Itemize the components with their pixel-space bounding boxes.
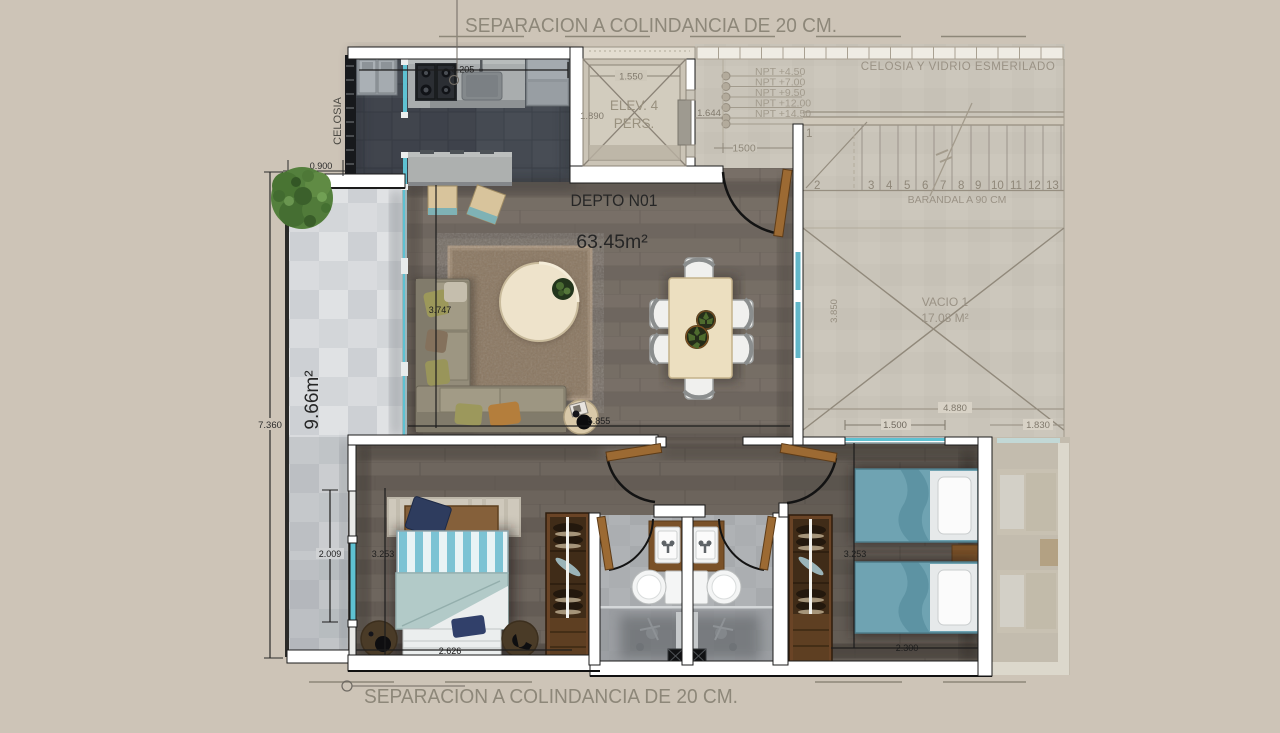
svg-text:9.66m²: 9.66m² (302, 370, 323, 429)
svg-text:9: 9 (975, 180, 981, 192)
svg-text:2.626: 2.626 (439, 646, 462, 656)
svg-text:13: 13 (1046, 180, 1059, 192)
svg-text:3.747: 3.747 (429, 305, 452, 315)
svg-text:2: 2 (814, 180, 820, 192)
svg-text:3.205: 3.205 (452, 65, 475, 75)
svg-text:1.644: 1.644 (697, 108, 721, 119)
svg-text:17.08 M²: 17.08 M² (921, 311, 968, 325)
svg-text:4.880: 4.880 (943, 403, 967, 414)
svg-text:7.360: 7.360 (258, 420, 282, 431)
svg-text:CELOSIA: CELOSIA (332, 96, 344, 144)
svg-text:3.253: 3.253 (844, 549, 867, 559)
svg-text:VACIO 1: VACIO 1 (922, 295, 969, 309)
svg-text:5.855: 5.855 (588, 416, 611, 426)
svg-text:1500: 1500 (732, 143, 756, 155)
svg-text:7: 7 (940, 180, 946, 192)
svg-text:1.890: 1.890 (580, 111, 604, 122)
svg-text:6: 6 (922, 180, 928, 192)
svg-text:63.45m²: 63.45m² (576, 231, 648, 253)
svg-text:2.300: 2.300 (896, 643, 919, 653)
svg-text:1: 1 (806, 128, 812, 140)
svg-text:5: 5 (904, 180, 910, 192)
svg-text:BARANDAL A 90 CM: BARANDAL A 90 CM (908, 194, 1007, 206)
svg-text:11: 11 (1010, 180, 1022, 192)
svg-text:8: 8 (958, 180, 964, 192)
svg-text:ELEV. 4: ELEV. 4 (610, 98, 659, 113)
svg-text:10: 10 (991, 180, 1004, 192)
svg-text:3.850: 3.850 (829, 299, 840, 323)
svg-text:3: 3 (868, 180, 874, 192)
svg-text:3.253: 3.253 (372, 549, 395, 559)
svg-text:CELOSIA Y VIDRIO ESMERILADO: CELOSIA Y VIDRIO ESMERILADO (861, 61, 1056, 73)
svg-text:4: 4 (886, 180, 893, 192)
svg-text:1.550: 1.550 (619, 72, 643, 83)
svg-text:PERS.: PERS. (614, 116, 655, 131)
svg-text:SEPARACION A COLINDANCIA DE 20: SEPARACION A COLINDANCIA DE 20 CM. (465, 14, 837, 37)
svg-text:SEPARACION A COLINDANCIA DE 20: SEPARACION A COLINDANCIA DE 20 CM. (364, 685, 738, 708)
svg-text:12: 12 (1028, 180, 1041, 192)
svg-text:DEPTO N01: DEPTO N01 (571, 191, 658, 210)
svg-text:2.009: 2.009 (319, 549, 342, 559)
svg-text:1.500: 1.500 (883, 420, 907, 431)
svg-text:1.830: 1.830 (1026, 420, 1050, 431)
